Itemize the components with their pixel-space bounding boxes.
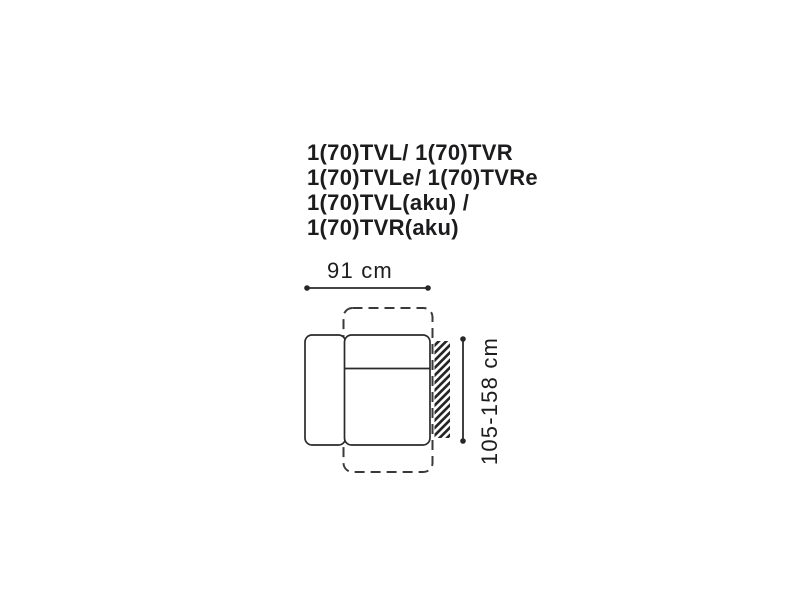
depth-dimension-label: 105-158 cm xyxy=(477,337,502,465)
depth-dimension-endpoint-bottom xyxy=(460,438,466,444)
width-dimension-endpoint-left xyxy=(304,285,310,291)
armrest-outline xyxy=(305,335,346,445)
width-dimension: 91 cm xyxy=(304,258,431,291)
width-dimension-label: 91 cm xyxy=(327,258,393,283)
seat-module-outline xyxy=(345,335,431,445)
wall-hatch xyxy=(435,341,451,438)
depth-dimension-endpoint-top xyxy=(460,336,466,342)
diagram-page: 1(70)TVL/ 1(70)TVR 1(70)TVLe/ 1(70)TVRe … xyxy=(0,0,800,600)
sofa-top-view-diagram: 91 cm 105-158 cm xyxy=(0,0,800,600)
width-dimension-endpoint-right xyxy=(425,285,431,291)
depth-dimension: 105-158 cm xyxy=(460,336,502,465)
